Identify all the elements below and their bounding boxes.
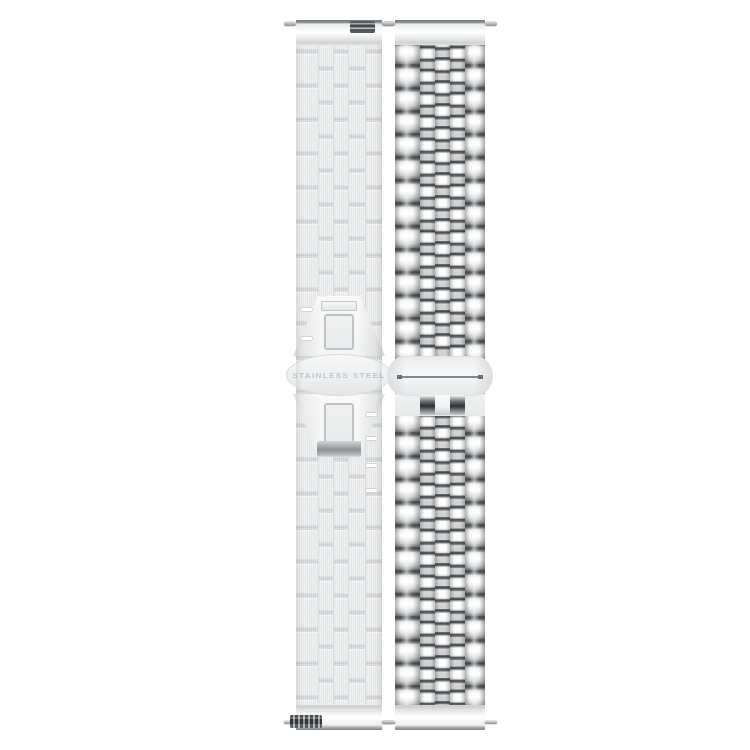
resize-slot	[365, 488, 378, 493]
spring-bar-pin-icon	[284, 22, 296, 26]
clasp-upper-window	[324, 314, 354, 350]
quick-release-slider-icon	[350, 21, 375, 33]
resize-slot	[365, 412, 378, 417]
clasp-mini-link	[450, 395, 465, 415]
butterfly-clasp-back: STAINLESS STEEL	[296, 20, 382, 730]
clasp-cover-plate: STAINLESS STEEL	[286, 354, 392, 396]
clasp-mini-link	[420, 395, 435, 415]
resize-slot	[300, 307, 313, 312]
watch-band-front-view	[395, 20, 485, 730]
resize-slot	[365, 436, 378, 441]
spring-bar-pin-icon	[485, 721, 497, 725]
quick-release-slider-icon	[290, 715, 322, 728]
resize-slot	[365, 463, 378, 468]
resize-slot	[300, 336, 313, 341]
clasp-front-cover	[395, 20, 485, 730]
clasp-lower-window	[324, 403, 354, 443]
spring-bar-pin-icon	[383, 22, 395, 26]
product-photo-watch-band: STAINLESS STEEL	[0, 0, 750, 750]
clasp-mini-link	[435, 395, 450, 415]
clasp-seam-line	[399, 376, 481, 378]
clasp-cover-front	[387, 356, 493, 396]
spring-bar-pin-icon	[485, 22, 497, 26]
engraving-text: STAINLESS STEEL	[292, 371, 385, 379]
end-link-top	[395, 20, 485, 45]
spring-bar-pin-icon	[383, 721, 395, 725]
clasp-release-lip	[317, 441, 361, 457]
watch-band-back-view: STAINLESS STEEL	[296, 20, 382, 730]
end-link-bottom	[395, 705, 485, 730]
clasp-hinge-cap	[321, 301, 357, 311]
